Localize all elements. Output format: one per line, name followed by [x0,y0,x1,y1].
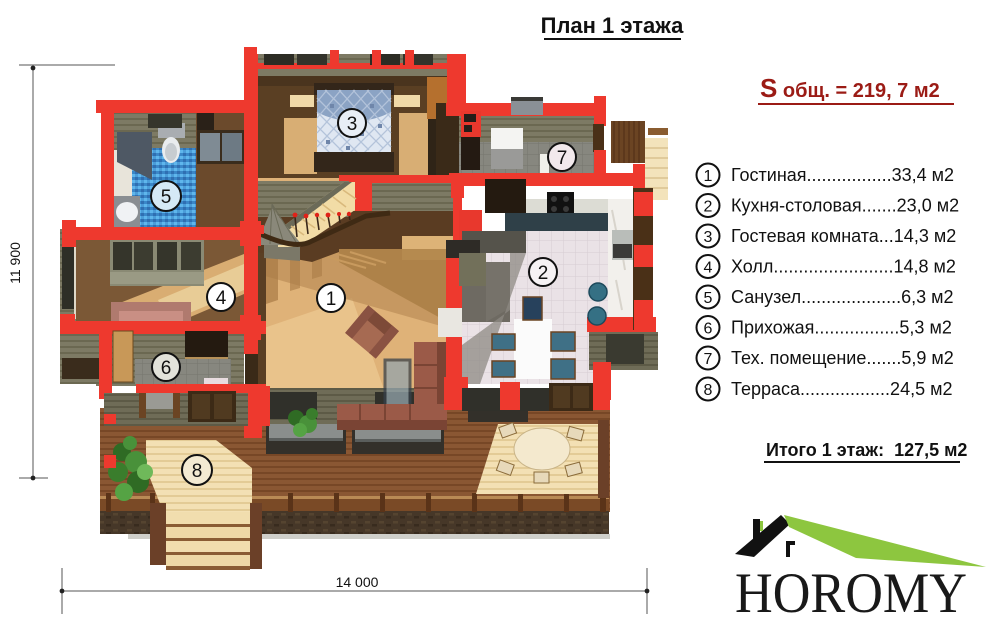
svg-text:6: 6 [704,321,713,338]
svg-text:3: 3 [347,114,358,135]
svg-text:План 1 этажа: План 1 этажа [541,13,685,38]
svg-text:11 900: 11 900 [7,242,23,284]
svg-text:Санузел....................6,3: Санузел....................6,3 м2 [731,287,954,307]
svg-text:1: 1 [704,168,713,185]
svg-text:Гостевая комната...14,3 м2: Гостевая комната...14,3 м2 [731,226,956,246]
svg-text:4: 4 [704,260,713,277]
svg-text:2: 2 [704,199,713,216]
svg-text:8: 8 [704,382,713,399]
svg-text:Тех. помещение.......5,9 м2: Тех. помещение.......5,9 м2 [731,348,954,368]
svg-text:Итого 1 этаж: 127,5 м2: Итого 1 этаж: 127,5 м2 [766,440,967,460]
svg-text:8: 8 [192,461,203,482]
svg-text:1: 1 [326,289,337,310]
svg-text:7: 7 [704,351,713,368]
svg-text:Гостиная.................33,4: Гостиная.................33,4 м2 [731,165,954,185]
svg-text:Прихожая.................5,3 м: Прихожая.................5,3 м2 [731,318,952,338]
svg-text:HOROMY: HOROMY [735,562,967,625]
svg-text:Терраса..................24,5: Терраса..................24,5 м2 [731,379,952,399]
svg-text:3: 3 [704,229,713,246]
svg-text:14 000: 14 000 [336,574,379,590]
svg-text:7: 7 [557,148,568,169]
svg-text:4: 4 [216,288,227,309]
svg-text:2: 2 [538,263,549,284]
svg-text:5: 5 [704,290,713,307]
svg-text:6: 6 [161,358,172,379]
svg-text:Холл........................14: Холл........................14,8 м2 [731,257,956,277]
svg-text:5: 5 [161,187,172,208]
svg-text:Кухня-столовая.......23,0 м2: Кухня-столовая.......23,0 м2 [731,196,959,216]
